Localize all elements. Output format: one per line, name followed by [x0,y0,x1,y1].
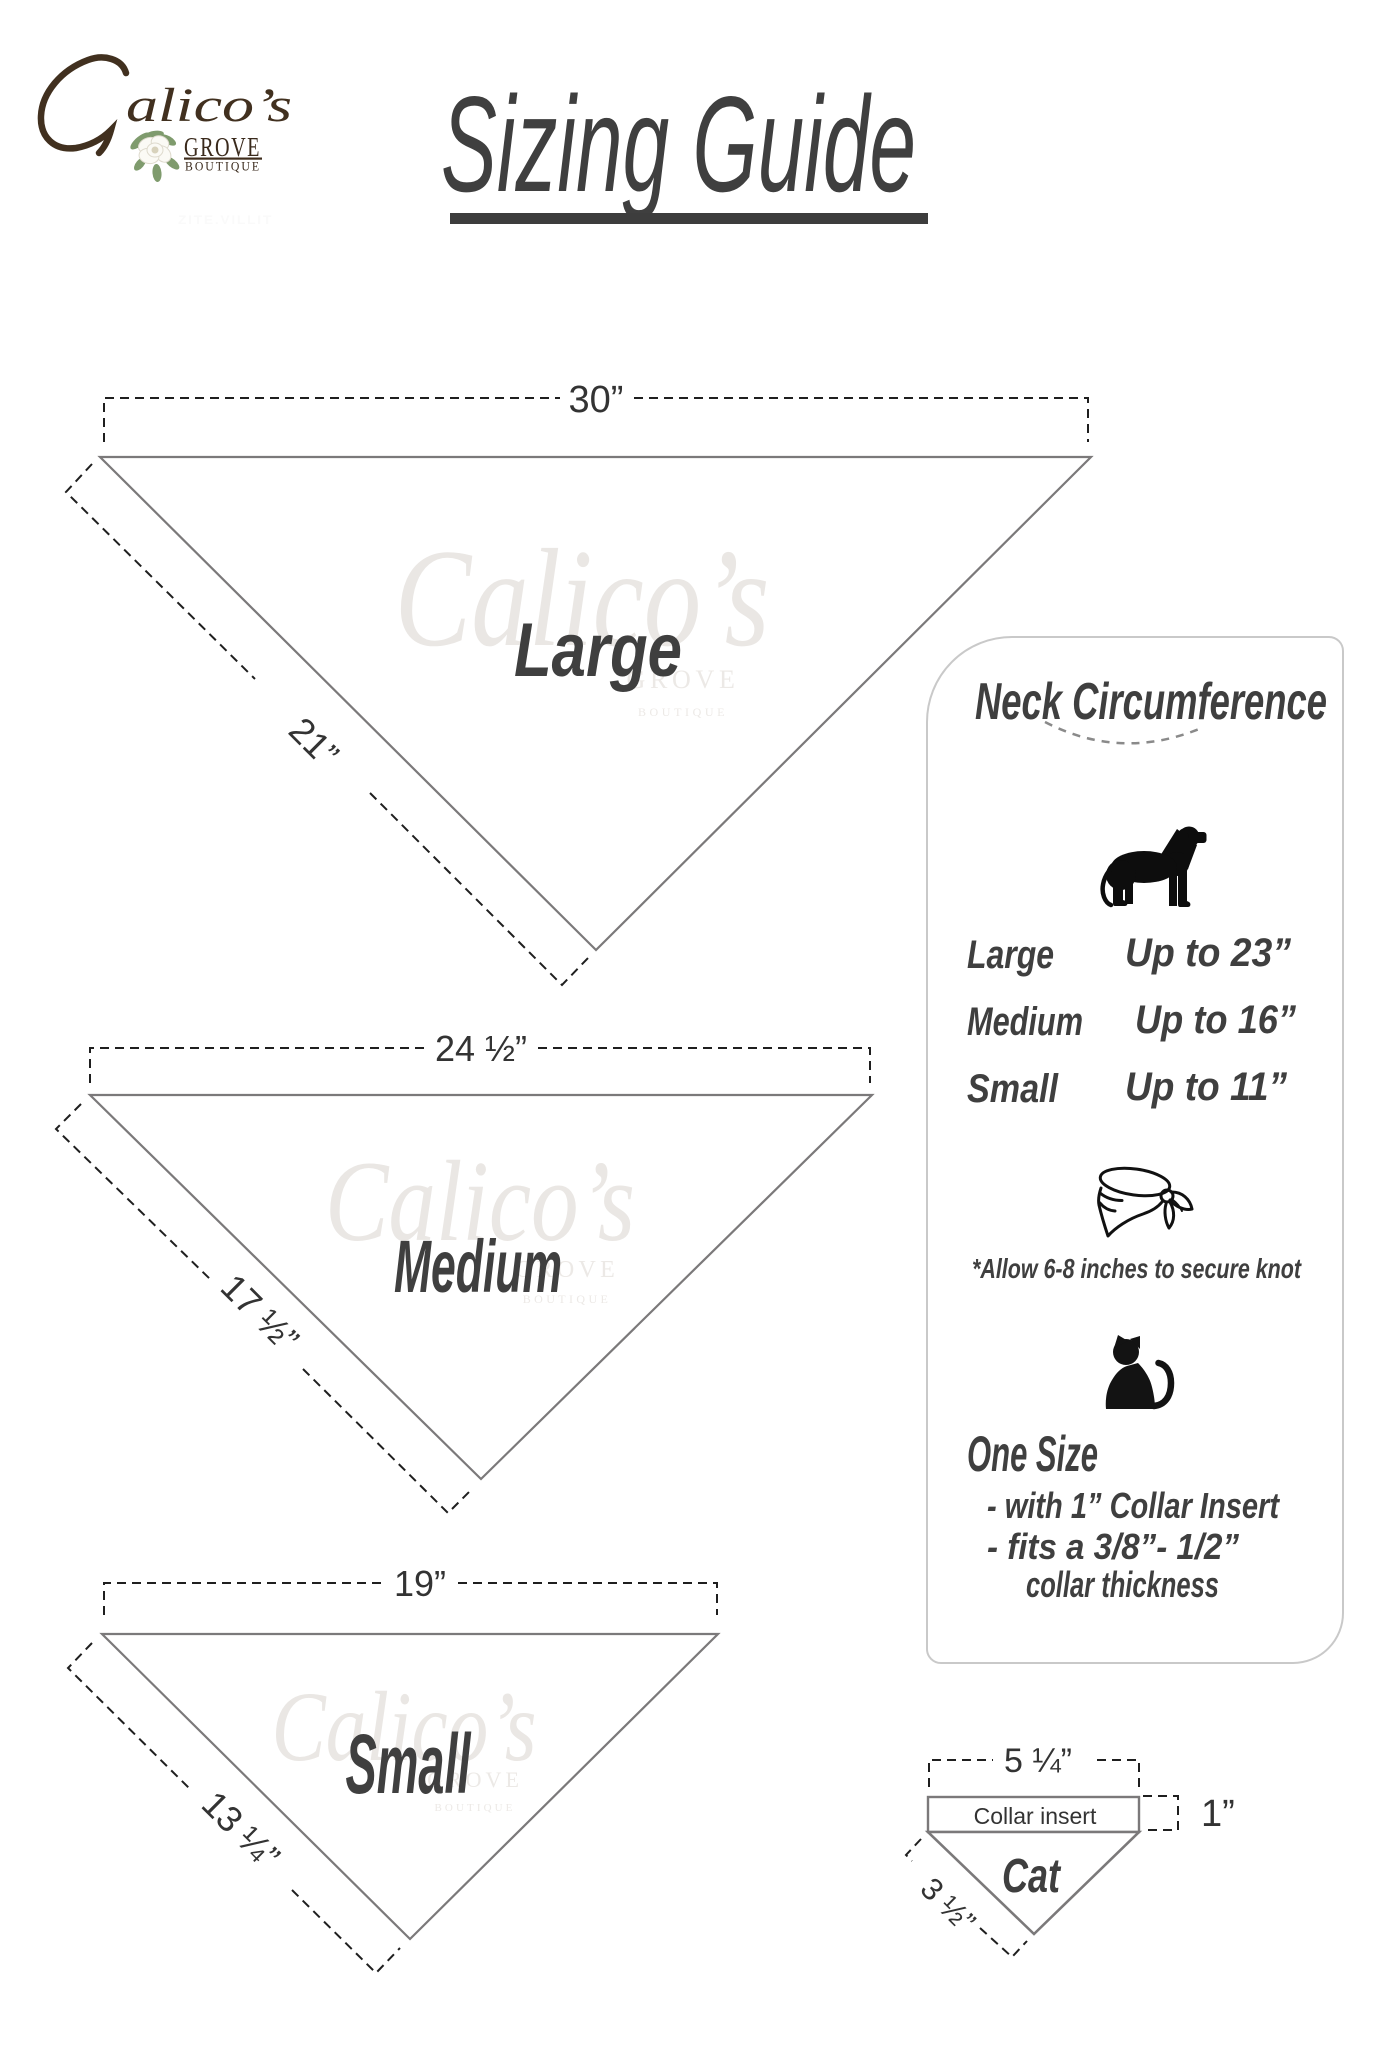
svg-text:BOUTIQUE: BOUTIQUE [185,159,261,174]
svg-text:Small: Small [967,1067,1059,1111]
svg-text:Up to 11”: Up to 11” [1125,1065,1287,1109]
svg-text:Large: Large [514,608,682,693]
svg-text:*Allow 6-8 inches to secure kn: *Allow 6-8 inches to secure knot [972,1253,1302,1284]
svg-text:Cat: Cat [1002,1850,1062,1903]
svg-text:30”: 30” [569,379,624,421]
svg-text:collar thickness: collar thickness [1026,1564,1219,1605]
svg-text:Medium: Medium [394,1225,562,1308]
svg-text:Small: Small [346,1717,472,1811]
svg-text:1”: 1” [1201,1793,1235,1835]
svg-text:- fits a 3/8”- 1/2”: - fits a 3/8”- 1/2” [987,1526,1239,1567]
svg-text:Neck Circumference: Neck Circumference [975,673,1327,731]
svg-text:Sizing Guide: Sizing Guide [441,68,916,220]
svg-text:One Size: One Size [967,1426,1098,1482]
svg-text:ZITE.VILLIT: ZITE.VILLIT [178,213,273,227]
svg-text:Medium: Medium [967,1000,1083,1044]
svg-text:Collar insert: Collar insert [974,1803,1097,1829]
svg-text:19”: 19” [394,1563,446,1604]
svg-text:Up to 23”: Up to 23” [1125,931,1291,975]
svg-text:Up to 16”: Up to 16” [1135,998,1296,1042]
svg-text:BOUTIQUE: BOUTIQUE [638,705,728,719]
svg-text:5 ¼”: 5 ¼” [1004,1742,1072,1780]
svg-text:alico’s: alico’s [126,79,292,132]
svg-text:24 ½”: 24 ½” [435,1028,527,1069]
svg-text:Large: Large [967,933,1054,977]
svg-text:- with 1” Collar Insert: - with 1” Collar Insert [987,1485,1281,1526]
